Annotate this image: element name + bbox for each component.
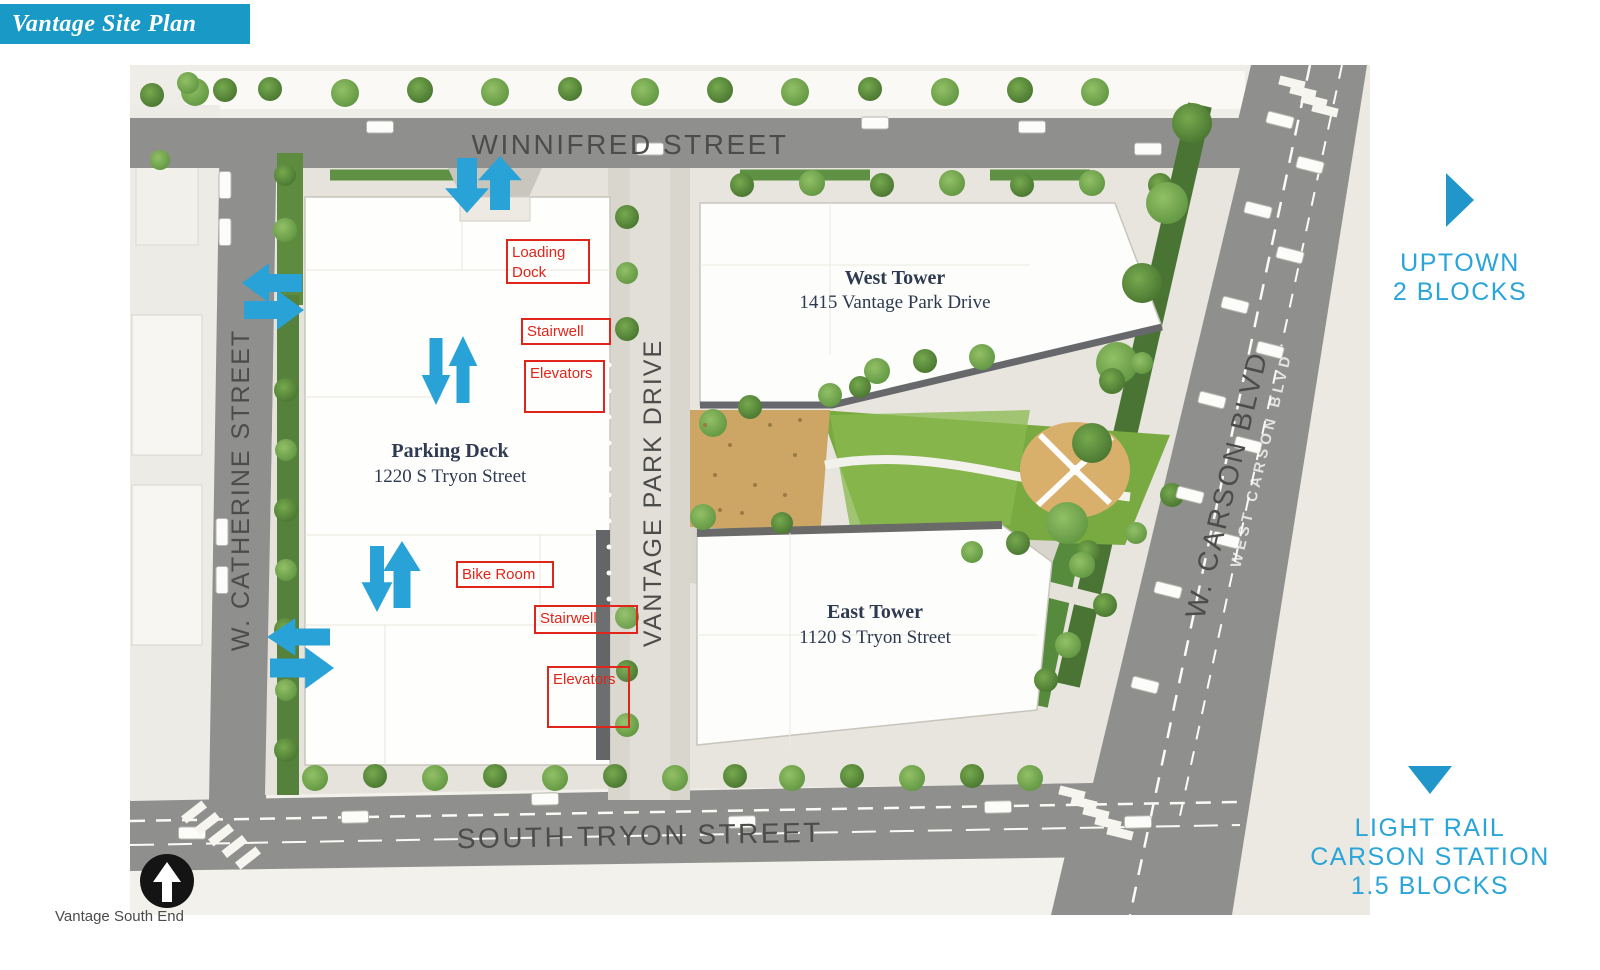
unit-label-elevators: Elevators xyxy=(547,666,630,728)
north-arrow-icon xyxy=(140,854,194,908)
tree-icon xyxy=(274,164,296,186)
tree-icon xyxy=(818,383,842,407)
plaza-dot xyxy=(783,493,787,497)
title-banner: Vantage Site Plan xyxy=(0,4,250,44)
unit-label-stairwell: Stairwell xyxy=(534,605,638,634)
label-parking-deck-name: Parking Deck xyxy=(391,440,509,462)
triangle-down-icon xyxy=(1408,766,1452,794)
tree-icon xyxy=(275,559,297,581)
tree-icon xyxy=(1010,173,1034,197)
tree-icon xyxy=(779,765,805,791)
tree-icon xyxy=(542,765,568,791)
tree-icon xyxy=(331,79,359,107)
tree-icon xyxy=(840,764,864,788)
tree-icon xyxy=(960,764,984,788)
parking-dot xyxy=(607,441,612,446)
tree-icon xyxy=(1034,668,1058,692)
tree-icon xyxy=(699,409,727,437)
car-icon xyxy=(984,801,1011,813)
plaza-dot xyxy=(703,423,707,427)
tree-icon xyxy=(274,738,298,762)
label-winnifred-street: WINNIFRED STREET xyxy=(472,129,789,160)
tree-icon xyxy=(275,439,297,461)
unit-label-elevators: Elevators xyxy=(524,360,605,413)
tree-icon xyxy=(140,83,164,107)
plaza-dot xyxy=(768,423,772,427)
tree-icon xyxy=(1046,502,1088,544)
tree-icon xyxy=(1099,368,1125,394)
tree-icon xyxy=(273,218,297,242)
light-rail-direction: LIGHT RAIL CARSON STATION 1.5 BLOCKS xyxy=(1305,766,1555,901)
parking-dot xyxy=(607,519,612,524)
car-icon xyxy=(219,219,231,246)
plaza-dot xyxy=(718,508,722,512)
tree-icon xyxy=(275,679,297,701)
tree-icon xyxy=(738,395,762,419)
unit-label-loading-dock: Loading Dock xyxy=(506,239,590,284)
site-plan-page: Vantage Site Plan xyxy=(0,0,1600,970)
tree-icon xyxy=(363,764,387,788)
tree-icon xyxy=(1007,77,1033,103)
site-plan-svg: WINNIFRED STREET SOUTH TRYON STREET W. C… xyxy=(130,65,1370,915)
car-icon xyxy=(341,811,368,823)
tree-icon xyxy=(213,78,237,102)
green-strip xyxy=(277,295,299,795)
tree-icon xyxy=(730,173,754,197)
car-icon xyxy=(1019,121,1046,133)
tree-icon xyxy=(631,78,659,106)
light-rail-line-3: 1.5 BLOCKS xyxy=(1351,872,1509,901)
site-plan-map: WINNIFRED STREET SOUTH TRYON STREET W. C… xyxy=(130,65,1370,915)
parking-dot xyxy=(607,415,612,420)
tree-icon xyxy=(1125,522,1147,544)
label-east-tower-name: East Tower xyxy=(827,601,923,623)
parking-dot xyxy=(607,493,612,498)
unit-label-stairwell: Stairwell xyxy=(521,318,611,345)
tree-icon xyxy=(274,498,298,522)
tree-icon xyxy=(1081,78,1109,106)
label-vantage-park-drive: VANTAGE PARK DRIVE xyxy=(639,339,667,647)
label-east-tower-address: 1120 S Tryon Street xyxy=(799,627,952,648)
tree-icon xyxy=(707,77,733,103)
label-catherine-street: W. CATHERINE STREET xyxy=(227,329,255,651)
tree-icon xyxy=(1072,423,1112,463)
tree-icon xyxy=(1017,765,1043,791)
tree-icon xyxy=(407,77,433,103)
car-icon xyxy=(1135,143,1162,155)
label-west-tower-address: 1415 Vantage Park Drive xyxy=(799,292,990,313)
tree-icon xyxy=(177,72,199,94)
tree-icon xyxy=(258,77,282,101)
car-icon xyxy=(219,172,231,199)
tree-icon xyxy=(150,150,170,170)
parking-dot xyxy=(607,467,612,472)
plaza-dot xyxy=(793,453,797,457)
tree-icon xyxy=(969,344,995,370)
light-rail-line-2: CARSON STATION xyxy=(1310,843,1550,872)
footer-caption: Vantage South End xyxy=(55,908,184,925)
plaza-dot xyxy=(728,443,732,447)
plaza-dot xyxy=(798,418,802,422)
tree-icon xyxy=(899,765,925,791)
tree-icon xyxy=(481,78,509,106)
tree-icon xyxy=(913,349,937,373)
label-west-tower-name: West Tower xyxy=(845,267,946,289)
uptown-line-2: 2 BLOCKS xyxy=(1393,278,1527,307)
tree-icon xyxy=(1093,593,1117,617)
tree-icon xyxy=(603,764,627,788)
tree-icon xyxy=(781,78,809,106)
tree-icon xyxy=(1146,182,1188,224)
tree-icon xyxy=(422,765,448,791)
tree-icon xyxy=(858,77,882,101)
tree-icon xyxy=(1131,352,1153,374)
tree-icon xyxy=(849,376,871,398)
parking-dot xyxy=(607,571,612,576)
car-icon xyxy=(367,121,394,133)
label-parking-deck-address: 1220 S Tryon Street xyxy=(374,466,527,487)
parking-dot xyxy=(607,363,612,368)
tree-icon xyxy=(483,764,507,788)
tree-icon xyxy=(961,541,983,563)
tree-icon xyxy=(1079,170,1105,196)
plaza-dot xyxy=(740,511,744,515)
tree-icon xyxy=(1006,531,1030,555)
uptown-line-1: UPTOWN xyxy=(1400,249,1520,278)
light-rail-line-1: LIGHT RAIL xyxy=(1355,814,1506,843)
tree-icon xyxy=(558,77,582,101)
car-icon xyxy=(531,793,558,805)
tree-icon xyxy=(690,504,716,530)
tree-icon xyxy=(615,205,639,229)
tree-icon xyxy=(662,765,688,791)
unit-label-bike-room: Bike Room xyxy=(456,561,554,588)
tree-icon xyxy=(1069,552,1095,578)
parking-dot xyxy=(607,545,612,550)
tree-icon xyxy=(1172,103,1212,143)
tree-icon xyxy=(931,78,959,106)
context-building xyxy=(132,315,202,455)
tree-icon xyxy=(799,170,825,196)
tree-icon xyxy=(870,173,894,197)
car-icon xyxy=(862,117,889,129)
tree-icon xyxy=(1122,263,1162,303)
uptown-direction: UPTOWN 2 BLOCKS xyxy=(1360,173,1560,307)
tree-icon xyxy=(274,378,298,402)
plaza-dot xyxy=(713,473,717,477)
parking-dot xyxy=(607,597,612,602)
tree-icon xyxy=(939,170,965,196)
tree-icon xyxy=(771,512,793,534)
tree-icon xyxy=(302,765,328,791)
triangle-right-icon xyxy=(1446,173,1474,227)
tree-icon xyxy=(1055,632,1081,658)
page-title: Vantage Site Plan xyxy=(12,11,197,38)
parking-dot xyxy=(607,389,612,394)
car-icon xyxy=(1124,816,1151,828)
tree-icon xyxy=(723,764,747,788)
tree-icon xyxy=(615,317,639,341)
label-south-tryon-street: SOUTH TRYON STREET xyxy=(457,817,824,854)
context-building xyxy=(132,485,202,645)
tree-icon xyxy=(616,262,638,284)
plaza-dot xyxy=(753,483,757,487)
